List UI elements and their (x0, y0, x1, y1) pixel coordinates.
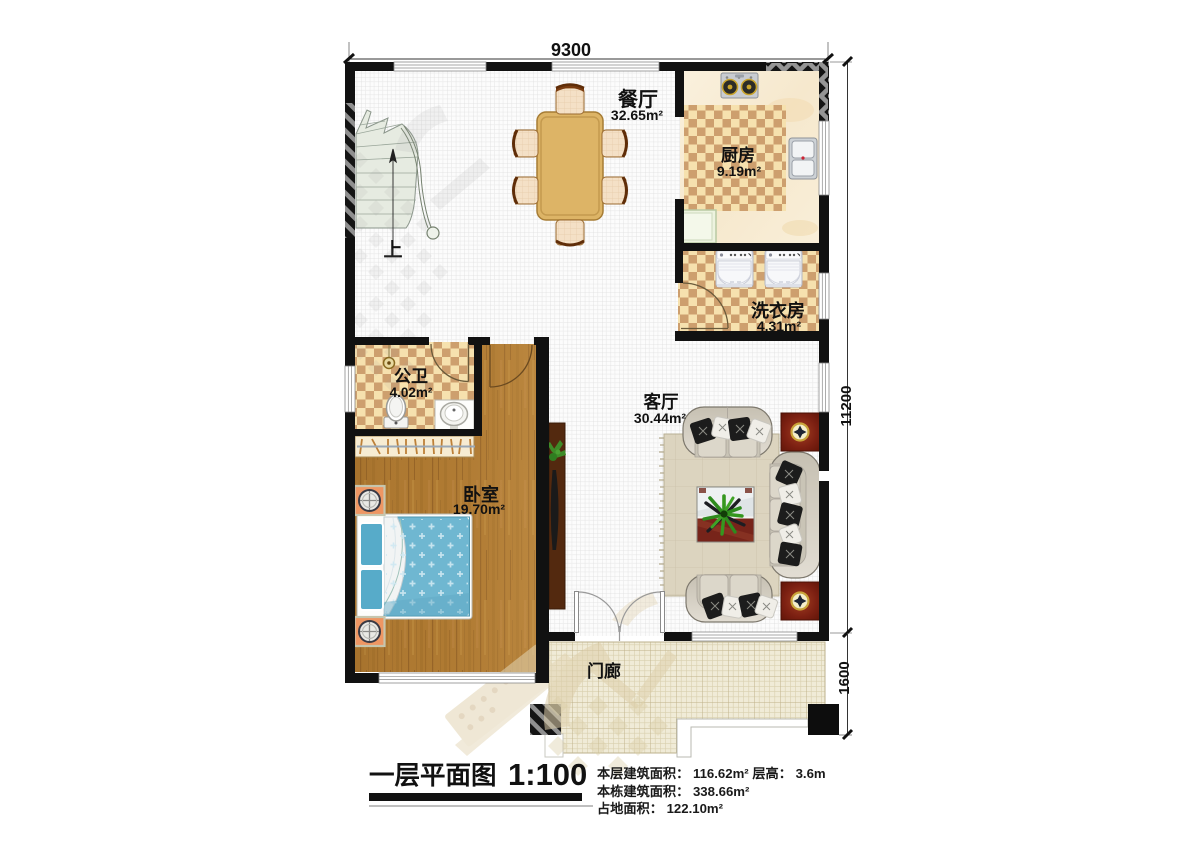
svg-text:公卫: 公卫 (394, 367, 428, 386)
svg-text:4.02m²: 4.02m² (390, 385, 433, 400)
svg-text:1600: 1600 (836, 661, 853, 694)
svg-text:本层建筑面积： 116.62m² 层高： 3.6m: 本层建筑面积： 116.62m² 层高： 3.6m (597, 765, 826, 781)
svg-text:9.19m²: 9.19m² (717, 163, 762, 179)
svg-text:30.44m²: 30.44m² (634, 410, 686, 426)
svg-text:本栋建筑面积： 338.66m²: 本栋建筑面积： 338.66m² (597, 783, 750, 799)
svg-text:4.31m²: 4.31m² (757, 318, 802, 334)
svg-text:一层平面图: 一层平面图 (369, 762, 497, 790)
svg-text:32.65m²: 32.65m² (611, 107, 663, 123)
svg-text:1:100: 1:100 (508, 757, 587, 792)
svg-text:9300: 9300 (551, 40, 591, 60)
svg-text:门廊: 门廊 (587, 661, 621, 681)
svg-text:客厅: 客厅 (643, 392, 679, 412)
svg-text:19.70m²: 19.70m² (453, 501, 505, 517)
svg-text:11200: 11200 (838, 386, 855, 427)
svg-text:占地面积： 122.10m²: 占地面积： 122.10m² (597, 800, 724, 816)
svg-text:厨房: 厨房 (721, 145, 755, 165)
